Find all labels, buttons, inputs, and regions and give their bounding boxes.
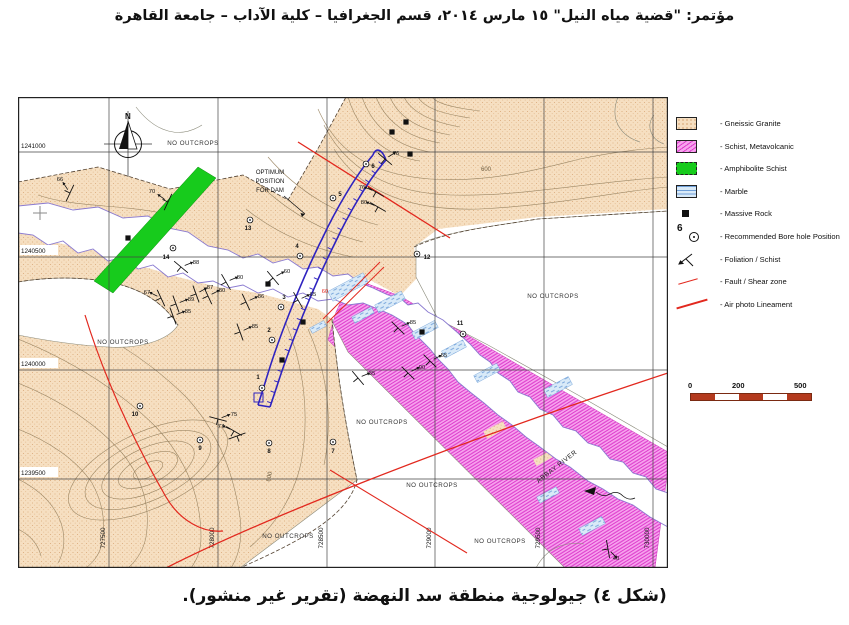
scale-bar-segments [690, 393, 812, 401]
legend-label: - Massive Rock [720, 209, 772, 218]
dip-value-label: 85 [252, 324, 258, 330]
document-page: مؤتمر: "قضية مياه النيل" ١٥ مارس ٢٠١٤، ق… [0, 0, 849, 625]
scale-bar: 0 200 500 m [690, 381, 814, 403]
granite-swatch-icon [676, 117, 697, 130]
grid-label-x: 730000 [644, 527, 651, 549]
dip-value-label: 66 [57, 177, 63, 183]
dip-value-label: 76 [393, 151, 399, 157]
north-label: N [125, 112, 131, 121]
massive-rock-marker [389, 129, 394, 134]
no-outcrops-label: NO OUTCROPS [406, 482, 458, 489]
scale-tick-0: 0 [688, 381, 692, 390]
borehole-number-label: 14 [163, 255, 170, 261]
borehole-marker-dot [462, 333, 464, 335]
lineament-icon [676, 299, 707, 310]
dip-value-label: 60 [284, 269, 290, 275]
massive-rock-marker [300, 319, 305, 324]
legend-label: - Fault / Shear zone [720, 277, 787, 286]
no-outcrops-label: NO OUTCROPS [167, 140, 219, 147]
dip-value-label: 55 [441, 353, 447, 359]
no-outcrops-label: NO OUTCROPS [474, 538, 526, 545]
dip-value-label: 88 [193, 260, 199, 266]
legend-label: - Marble [720, 187, 748, 196]
massive-rock-icon [682, 210, 689, 217]
dip-value-label: 65 [310, 292, 316, 298]
scale-tick-200: 200 [732, 381, 745, 390]
dip-value-label: 85 [185, 309, 191, 315]
no-outcrops-label: NO OUTCROPS [527, 293, 579, 300]
dip-value-label: 75 [231, 412, 237, 418]
dip-value-label: 80 [219, 288, 225, 294]
borehole-marker-dot [332, 197, 334, 199]
legend-item-schist-metavolcanic: - Schist, Metavolcanic [676, 139, 848, 154]
legend-item-massive-rock: - Massive Rock [676, 206, 848, 221]
massive-rock-marker [419, 329, 424, 334]
legend-item-amphibolite-schist: - Amphibolite Schist [676, 161, 848, 176]
figure-caption: (شكل ٤) جيولوجية منطقة سد النهضة (تقرير … [0, 586, 849, 606]
borehole-marker-dot [299, 255, 301, 257]
dip-value-label: 35 [369, 371, 375, 377]
amphibolite-swatch-icon [676, 162, 697, 175]
conference-header: مؤتمر: "قضية مياه النيل" ١٥ مارس ٢٠١٤، ق… [0, 8, 849, 24]
dam-note-label: FOR DAM [256, 188, 284, 194]
dip-value-label: 90 [419, 365, 425, 371]
borehole-marker-dot [365, 163, 367, 165]
fault-line-icon [678, 278, 698, 284]
dip-value-label: 86 [258, 294, 264, 300]
dip-value-label: 67 [144, 290, 150, 296]
legend-item-marble: - Marble [676, 184, 848, 199]
massive-rock-marker [403, 119, 408, 124]
dip-value-label: 76 [359, 185, 365, 191]
borehole-icon [689, 232, 699, 242]
borehole-number-label: 13 [245, 226, 252, 232]
fault-dip-label: 60 [322, 289, 328, 295]
dip-value-label: 89 [188, 297, 194, 303]
dip-value-label: 77 [218, 424, 224, 430]
legend-label: - Foliation / Schist [720, 255, 780, 264]
massive-rock-marker [407, 151, 412, 156]
borehole-marker-dot [280, 306, 282, 308]
borehole-marker-dot [261, 387, 263, 389]
borehole-marker-dot [139, 405, 141, 407]
borehole-number-label: 11 [457, 321, 464, 327]
borehole-marker-dot [199, 439, 201, 441]
grid-label-x: 729500 [535, 527, 542, 549]
borehole-number-label: 10 [132, 412, 139, 418]
grid-label-x: 727500 [100, 527, 107, 549]
borehole-marker-dot [416, 253, 418, 255]
dip-value-label: 80 [361, 200, 367, 206]
massive-rock-marker [125, 235, 130, 240]
dip-value-label: 87 [207, 285, 213, 291]
legend-item-borehole: 6 - Recommended Bore hole Position [676, 229, 848, 244]
borehole-marker-dot [271, 339, 273, 341]
legend-item-fault: - Fault / Shear zone [676, 274, 848, 289]
massive-rock-marker [265, 281, 270, 286]
legend-label: - Schist, Metavolcanic [720, 142, 794, 151]
no-outcrops-label: NO OUTCROPS [356, 419, 408, 426]
contour-value-label: 600 [481, 167, 492, 173]
borehole-marker-dot [249, 219, 251, 221]
no-outcrops-label: NO OUTCROPS [262, 533, 314, 540]
marble-swatch-icon [676, 185, 697, 198]
legend-item-gneissic-granite: - Gneissic Granite [676, 116, 848, 131]
borehole-marker-dot [268, 442, 270, 444]
borehole-number: 6 [677, 223, 683, 234]
geologic-map: 7275007280007285007290007295007300001241… [18, 97, 668, 568]
no-outcrops-label: NO OUTCROPS [97, 339, 149, 346]
borehole-marker-dot [332, 441, 334, 443]
legend-label: - Air photo Lineament [720, 300, 792, 309]
grid-label-y: 1240000 [21, 361, 46, 368]
legend-item-foliation: - Foliation / Schist [676, 252, 848, 267]
grid-label-x: 728500 [318, 527, 325, 549]
dip-value-label: 40 [613, 556, 619, 562]
borehole-marker-dot [172, 247, 174, 249]
borehole-number-label: 12 [424, 255, 431, 261]
dip-value-label: 80 [237, 275, 243, 281]
map-legend: - Gneissic Granite - Schist, Metavolcani… [676, 116, 848, 319]
dam-note-label: POSITION [256, 179, 285, 185]
massive-rock-marker [279, 357, 284, 362]
legend-label: - Gneissic Granite [720, 119, 781, 128]
legend-item-lineament: - Air photo Lineament [676, 297, 848, 312]
grid-label-y: 1240500 [21, 248, 46, 255]
dip-value-label: 85 [410, 320, 416, 326]
foliation-icon [676, 251, 698, 267]
grid-label-y: 1239500 [21, 470, 46, 477]
legend-label: - Amphibolite Schist [720, 164, 787, 173]
grid-label-y: 1241000 [21, 143, 46, 150]
legend-label: - Recommended Bore hole Position [720, 232, 840, 241]
dip-value-label: 70 [149, 189, 155, 195]
dam-note-label: OPTIMUM [256, 170, 284, 176]
schist-swatch-icon [676, 140, 697, 153]
